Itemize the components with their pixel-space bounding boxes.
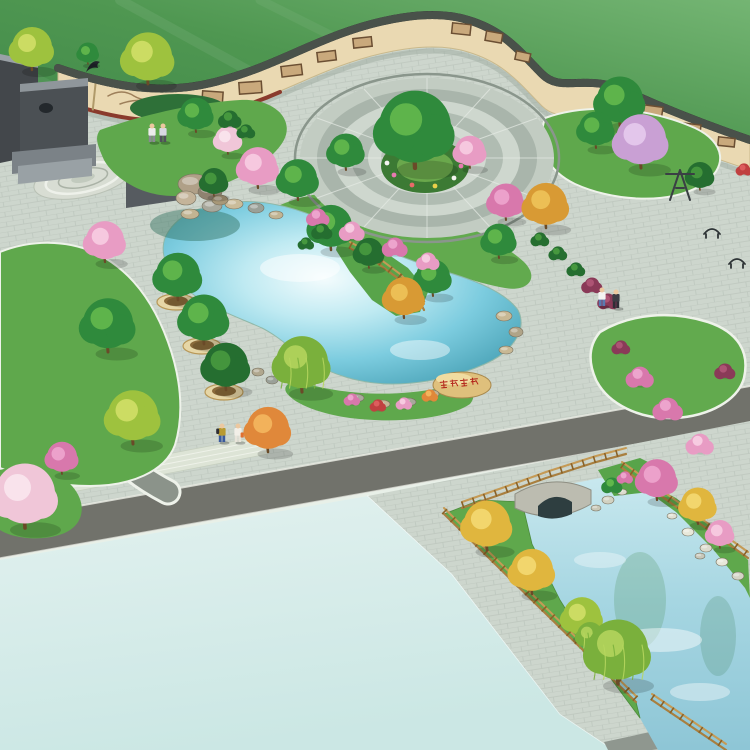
water-sparkle [390, 340, 450, 360]
rock [591, 505, 601, 511]
rock [252, 368, 264, 376]
rock [667, 513, 677, 519]
rock [181, 209, 199, 219]
rock [695, 553, 705, 559]
rock [602, 496, 614, 504]
rock [682, 528, 694, 536]
canal-reflection-green [700, 596, 736, 676]
monument-ornament [39, 103, 53, 113]
canal-sparkle [670, 683, 730, 701]
mural-panel [238, 80, 263, 95]
mural-panel [352, 36, 373, 49]
mural-panel [717, 136, 736, 148]
scene-canvas: 古风广场 [0, 0, 750, 750]
rock [716, 558, 728, 566]
mural-panel [451, 22, 472, 36]
rock [248, 203, 264, 213]
rock [176, 191, 196, 205]
water-sparkle [260, 254, 340, 282]
rock [509, 327, 523, 337]
rock [499, 346, 513, 354]
rock [496, 311, 512, 321]
landscape-rendering: 古风广场 [0, 0, 750, 750]
canal-sparkle [574, 552, 626, 568]
rock [269, 211, 283, 219]
rock [732, 572, 744, 580]
rock [700, 544, 712, 552]
